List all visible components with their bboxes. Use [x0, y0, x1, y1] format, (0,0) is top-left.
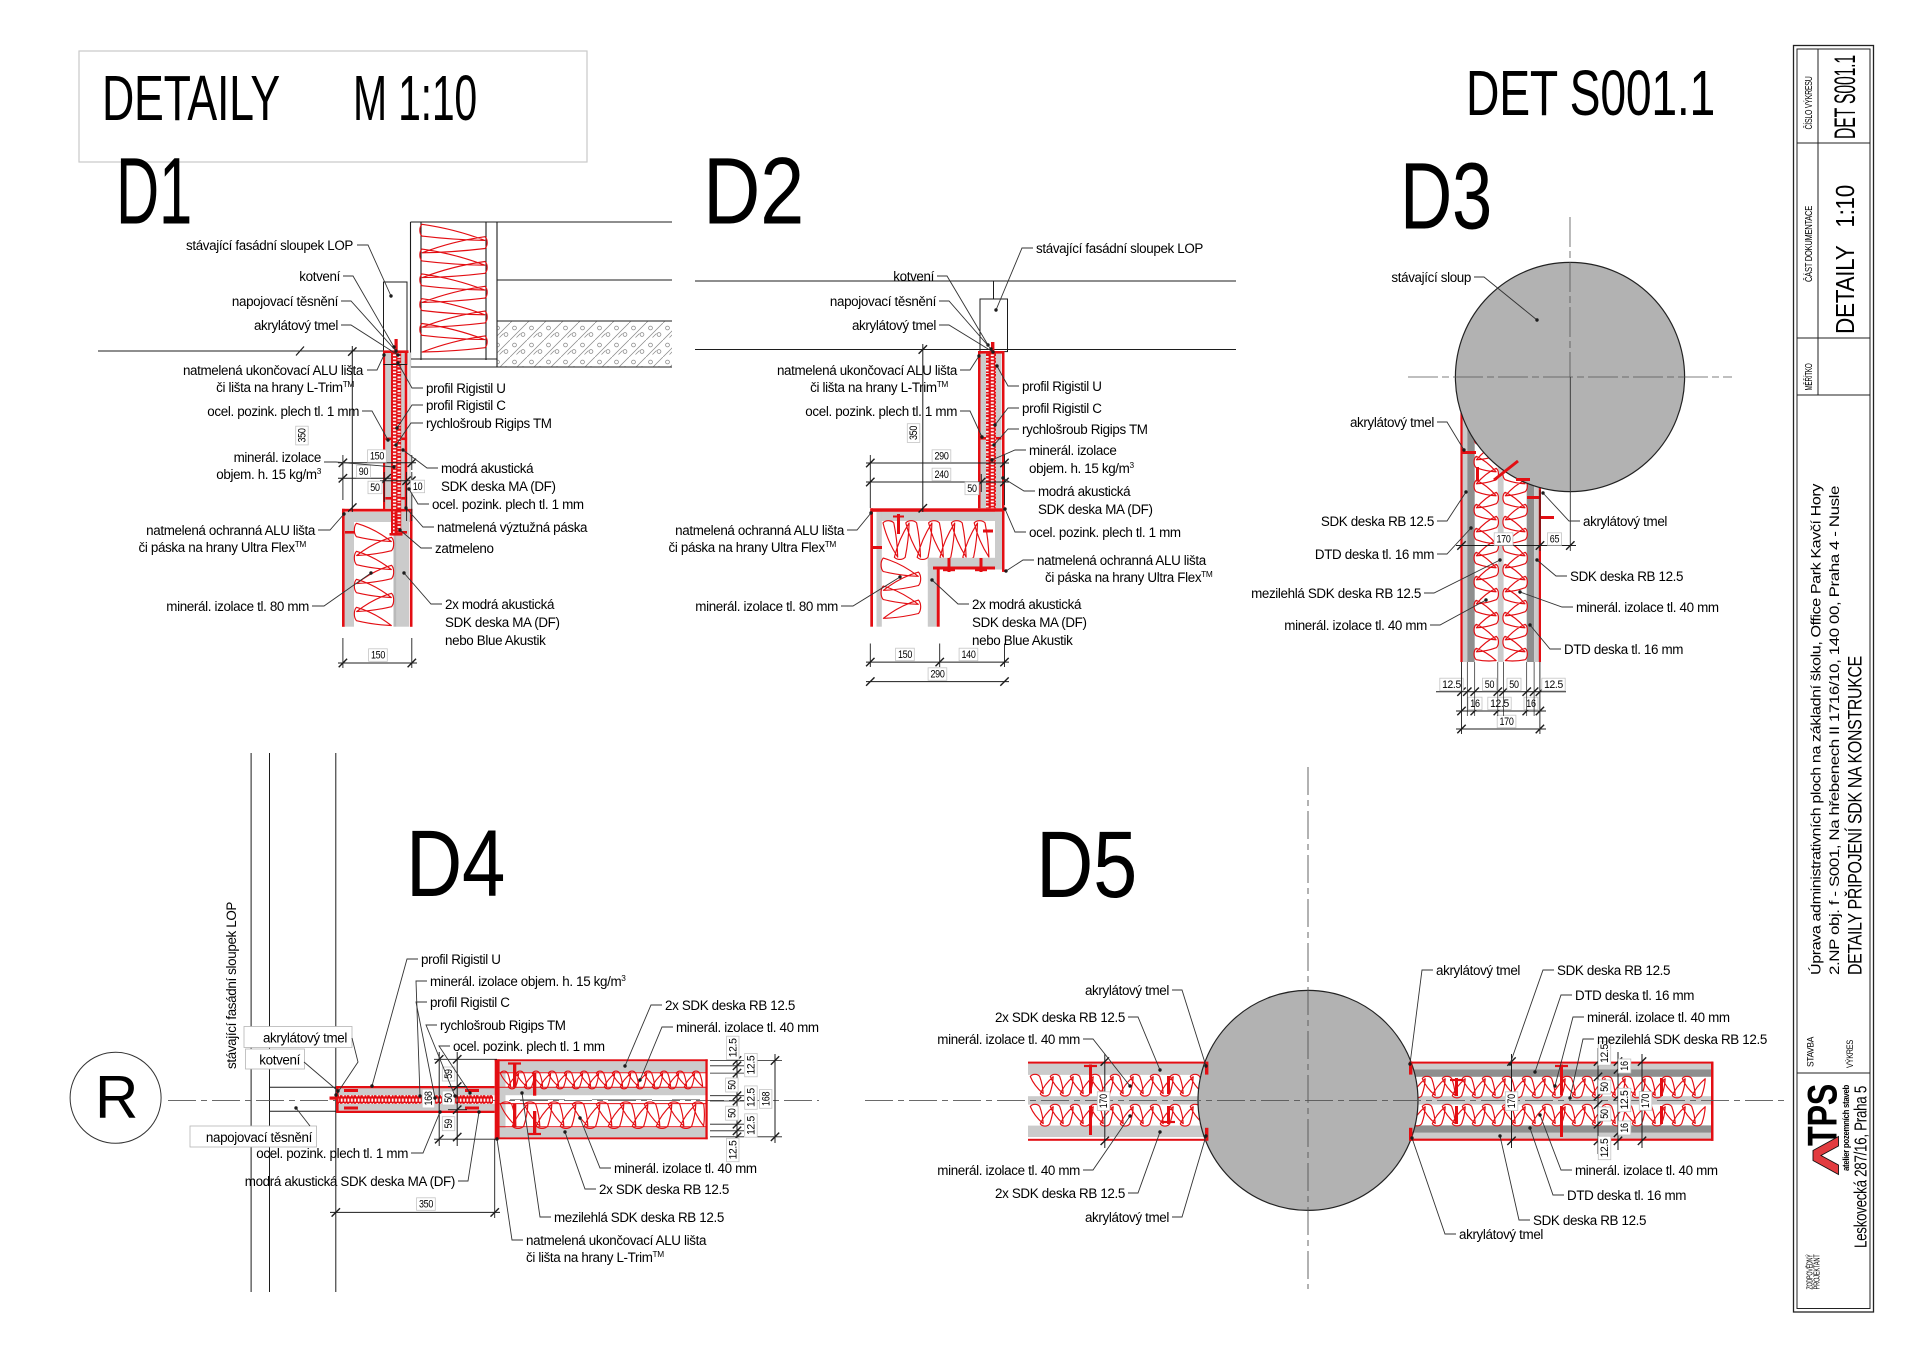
svg-text:či lišta na hrany L-TrimTM: či lišta na hrany L-TrimTM — [810, 379, 948, 395]
svg-text:minerál. izolace objem. h. 15: minerál. izolace objem. h. 15 kg/m3 — [430, 973, 626, 989]
svg-text:16: 16 — [1619, 1123, 1631, 1133]
svg-text:či páska na hrany Ultra FlexTM: či páska na hrany Ultra FlexTM — [139, 539, 307, 555]
svg-text:mezilehlá SDK deska RB 12.5: mezilehlá SDK deska RB 12.5 — [1597, 1032, 1767, 1047]
svg-text:59: 59 — [443, 1119, 455, 1129]
svg-text:profil Rigistil U: profil Rigistil U — [1022, 379, 1102, 394]
svg-text:12.5: 12.5 — [1442, 679, 1461, 691]
svg-text:minerál. izolace tl. 40 mm: minerál. izolace tl. 40 mm — [676, 1020, 819, 1035]
svg-text:2x SDK deska RB 12.5: 2x SDK deska RB 12.5 — [995, 1010, 1125, 1025]
svg-text:ČÁST DOKUMENTACE: ČÁST DOKUMENTACE — [1802, 205, 1815, 282]
svg-text:minerál. izolace tl. 40 mm: minerál. izolace tl. 40 mm — [937, 1163, 1080, 1178]
svg-text:ocel. pozink. plech tl. 1 mm: ocel. pozink. plech tl. 1 mm — [432, 497, 584, 512]
svg-text:140: 140 — [961, 649, 975, 661]
svg-text:DTD deska tl. 16 mm: DTD deska tl. 16 mm — [1567, 1188, 1686, 1203]
svg-text:ocel. pozink. plech tl. 1 mm: ocel. pozink. plech tl. 1 mm — [256, 1146, 408, 1161]
svg-text:minerál. izolace tl. 80 mm: minerál. izolace tl. 80 mm — [695, 599, 838, 614]
svg-text:modrá akustická: modrá akustická — [1038, 484, 1131, 499]
svg-text:objem. h. 15 kg/m3: objem. h. 15 kg/m3 — [1029, 460, 1134, 476]
svg-text:modrá akustická SDK deska MA (: modrá akustická SDK deska MA (DF) — [245, 1174, 455, 1189]
svg-text:170: 170 — [1499, 716, 1513, 728]
svg-text:rychlošroub Rigips TM: rychlošroub Rigips TM — [426, 416, 552, 431]
svg-text:12.5: 12.5 — [1599, 1138, 1611, 1157]
svg-text:150: 150 — [371, 650, 385, 662]
svg-text:50: 50 — [1599, 1082, 1611, 1092]
svg-text:170: 170 — [1506, 1094, 1518, 1108]
svg-text:akrylátový tmel: akrylátový tmel — [1583, 514, 1667, 529]
svg-text:350: 350 — [419, 1199, 433, 1211]
svg-text:DETAILY: DETAILY — [102, 62, 280, 134]
svg-text:65: 65 — [1550, 534, 1560, 546]
svg-text:290: 290 — [930, 669, 944, 681]
svg-text:50: 50 — [443, 1093, 455, 1103]
svg-text:ocel. pozink. plech tl. 1 mm: ocel. pozink. plech tl. 1 mm — [453, 1039, 605, 1054]
svg-text:mezilehlá SDK deska RB 12.5: mezilehlá SDK deska RB 12.5 — [554, 1210, 724, 1225]
svg-text:D1: D1 — [116, 139, 192, 245]
svg-text:profil Rigistil U: profil Rigistil U — [421, 952, 501, 967]
svg-text:napojovací těsnění: napojovací těsnění — [232, 294, 339, 309]
svg-text:natmelená ukončovací ALU lišta: natmelená ukončovací ALU lišta — [777, 363, 958, 378]
svg-text:minerál. izolace: minerál. izolace — [1029, 443, 1116, 458]
svg-text:minerál. izolace tl. 40 mm: minerál. izolace tl. 40 mm — [1284, 618, 1427, 633]
svg-text:2.NP obj. f - S001, Na hřebene: 2.NP obj. f - S001, Na hřebenech II 1716… — [1826, 485, 1842, 975]
svg-text:10: 10 — [413, 481, 423, 493]
svg-text:Leskovecká 287/16, Praha 5: Leskovecká 287/16, Praha 5 — [1851, 1086, 1871, 1248]
svg-text:natmelená ochranná ALU lišta: natmelená ochranná ALU lišta — [146, 523, 316, 538]
svg-text:minerál. izolace tl. 40 mm: minerál. izolace tl. 40 mm — [1575, 1163, 1718, 1178]
svg-text:SDK deska RB 12.5: SDK deska RB 12.5 — [1321, 514, 1434, 529]
svg-text:DETAILY 1:10: DETAILY 1:10 — [1830, 185, 1860, 334]
svg-text:SDK deska MA (DF): SDK deska MA (DF) — [1038, 502, 1153, 517]
svg-text:M 1:10: M 1:10 — [353, 62, 477, 134]
svg-text:170: 170 — [1496, 534, 1510, 546]
svg-text:12.5: 12.5 — [727, 1038, 739, 1057]
svg-text:ocel. pozink. plech tl. 1 mm: ocel. pozink. plech tl. 1 mm — [805, 404, 957, 419]
svg-text:či lišta na hrany L-TrimTM: či lišta na hrany L-TrimTM — [216, 379, 354, 395]
svg-text:ocel. pozink. plech tl. 1 mm: ocel. pozink. plech tl. 1 mm — [207, 404, 359, 419]
svg-text:170: 170 — [1098, 1094, 1110, 1108]
svg-text:modrá akustická: modrá akustická — [441, 461, 534, 476]
svg-text:natmelená ukončovací ALU lišta: natmelená ukončovací ALU lišta — [183, 363, 364, 378]
svg-text:VÝKRES: VÝKRES — [1845, 1040, 1855, 1068]
svg-text:SDK deska RB 12.5: SDK deska RB 12.5 — [1533, 1213, 1646, 1228]
svg-text:150: 150 — [370, 451, 384, 463]
svg-text:D2: D2 — [703, 139, 804, 245]
svg-text:akrylátový tmel: akrylátový tmel — [254, 318, 338, 333]
svg-text:350: 350 — [908, 426, 920, 440]
svg-text:12.5: 12.5 — [1490, 698, 1509, 710]
svg-text:50: 50 — [727, 1108, 739, 1118]
svg-text:12.5: 12.5 — [746, 1088, 758, 1107]
svg-text:kotvení: kotvení — [893, 269, 934, 284]
svg-text:DTD deska tl. 16 mm: DTD deska tl. 16 mm — [1564, 642, 1683, 657]
svg-text:12.5: 12.5 — [727, 1140, 739, 1159]
svg-text:či páska na hrany Ultra FlexTM: či páska na hrany Ultra FlexTM — [1045, 569, 1213, 585]
svg-text:240: 240 — [934, 469, 948, 481]
svg-text:50: 50 — [726, 1080, 738, 1090]
svg-text:50: 50 — [1485, 679, 1495, 691]
svg-text:2x SDK deska RB 12.5: 2x SDK deska RB 12.5 — [599, 1182, 729, 1197]
svg-text:MĚŘÍTKO: MĚŘÍTKO — [1802, 363, 1815, 390]
svg-text:2x modrá akustická: 2x modrá akustická — [445, 597, 555, 612]
svg-text:2x SDK deska RB 12.5: 2x SDK deska RB 12.5 — [995, 1186, 1125, 1201]
svg-text:50: 50 — [1599, 1109, 1611, 1119]
svg-text:rychlošroub Rigips TM: rychlošroub Rigips TM — [1022, 422, 1148, 437]
svg-text:akrylátový tmel: akrylátový tmel — [263, 1031, 347, 1046]
svg-text:minerál. izolace tl. 40 mm: minerál. izolace tl. 40 mm — [1587, 1010, 1730, 1025]
svg-text:DTD deska tl. 16 mm: DTD deska tl. 16 mm — [1575, 988, 1694, 1003]
svg-text:SDK deska RB 12.5: SDK deska RB 12.5 — [1570, 569, 1683, 584]
svg-text:natmelená výztužná páska: natmelená výztužná páska — [437, 520, 588, 535]
svg-text:nebo Blue Akustik: nebo Blue Akustik — [972, 633, 1073, 648]
svg-text:16: 16 — [1619, 1061, 1631, 1071]
svg-text:natmelená ukončovací ALU lišta: natmelená ukončovací ALU lišta — [526, 1233, 707, 1248]
svg-text:zatmeleno: zatmeleno — [435, 541, 494, 556]
svg-text:stávající fasádní sloupek LOP: stávající fasádní sloupek LOP — [224, 902, 239, 1069]
svg-text:natmelená ochranná ALU lišta: natmelená ochranná ALU lišta — [1037, 553, 1207, 568]
svg-text:50: 50 — [967, 483, 977, 495]
svg-text:168: 168 — [760, 1092, 772, 1106]
svg-text:ČÍSLO VÝKRESU: ČÍSLO VÝKRESU — [1802, 76, 1815, 129]
svg-text:12.5: 12.5 — [1544, 679, 1563, 691]
svg-text:290: 290 — [934, 451, 948, 463]
svg-text:170: 170 — [1640, 1094, 1652, 1108]
svg-text:či lišta na hrany L-TrimTM: či lišta na hrany L-TrimTM — [526, 1249, 664, 1265]
svg-text:minerál. izolace tl. 40 mm: minerál. izolace tl. 40 mm — [614, 1161, 757, 1176]
svg-text:50: 50 — [1509, 679, 1519, 691]
svg-text:SDK deska RB 12.5: SDK deska RB 12.5 — [1557, 963, 1670, 978]
svg-text:12.5: 12.5 — [746, 1055, 758, 1074]
svg-text:stávající fasádní sloupek LOP: stávající fasádní sloupek LOP — [186, 238, 353, 253]
svg-text:SDK deska MA (DF): SDK deska MA (DF) — [972, 615, 1087, 630]
svg-text:profil Rigistil C: profil Rigistil C — [426, 398, 506, 413]
svg-text:nebo Blue Akustik: nebo Blue Akustik — [445, 633, 546, 648]
svg-text:DET S001.1: DET S001.1 — [1829, 55, 1862, 139]
svg-text:50: 50 — [370, 482, 380, 494]
svg-text:Úprava administrativních ploch: Úprava administrativních ploch na základ… — [1808, 484, 1824, 975]
svg-text:objem. h. 15 kg/m3: objem. h. 15 kg/m3 — [216, 466, 321, 482]
svg-text:akrylátový tmel: akrylátový tmel — [852, 318, 936, 333]
svg-text:mezilehlá SDK deska RB 12.5: mezilehlá SDK deska RB 12.5 — [1251, 586, 1421, 601]
svg-text:SDK deska MA (DF): SDK deska MA (DF) — [445, 615, 560, 630]
svg-text:akrylátový tmel: akrylátový tmel — [1085, 983, 1169, 998]
svg-text:akrylátový tmel: akrylátový tmel — [1436, 963, 1520, 978]
svg-text:stávající fasádní sloupek LOP: stávající fasádní sloupek LOP — [1036, 241, 1203, 256]
svg-text:rychlošroub Rigips TM: rychlošroub Rigips TM — [440, 1018, 566, 1033]
svg-text:akrylátový tmel: akrylátový tmel — [1350, 415, 1434, 430]
svg-text:kotvení: kotvení — [259, 1053, 300, 1068]
svg-text:minerál. izolace tl. 40 mm: minerál. izolace tl. 40 mm — [937, 1032, 1080, 1047]
svg-text:90: 90 — [359, 466, 369, 478]
svg-text:12.5: 12.5 — [1619, 1090, 1631, 1109]
svg-text:minerál. izolace tl. 40 mm: minerál. izolace tl. 40 mm — [1576, 600, 1719, 615]
svg-text:DETAILY PŘIPOJENÍ SDK NA KONST: DETAILY PŘIPOJENÍ SDK NA KONSTRUKCE — [1845, 656, 1867, 975]
svg-text:2x modrá akustická: 2x modrá akustická — [972, 597, 1082, 612]
svg-text:minerál. izolace tl. 80 mm: minerál. izolace tl. 80 mm — [166, 599, 309, 614]
svg-text:ocel. pozink. plech tl. 1 mm: ocel. pozink. plech tl. 1 mm — [1029, 525, 1181, 540]
svg-text:D3: D3 — [1400, 144, 1492, 250]
svg-text:minerál. izolace: minerál. izolace — [234, 450, 321, 465]
svg-text:350: 350 — [297, 428, 309, 442]
svg-text:stávající sloup: stávající sloup — [1391, 270, 1471, 285]
svg-text:či páska na hrany Ultra FlexTM: či páska na hrany Ultra FlexTM — [669, 539, 837, 555]
svg-text:akrylátový tmel: akrylátový tmel — [1085, 1210, 1169, 1225]
svg-text:profil Rigistil C: profil Rigistil C — [1022, 401, 1102, 416]
svg-text:D4: D4 — [406, 811, 505, 917]
svg-text:150: 150 — [898, 649, 912, 661]
svg-text:akrylátový tmel: akrylátový tmel — [1459, 1227, 1543, 1242]
svg-text:SDK deska MA (DF): SDK deska MA (DF) — [441, 479, 556, 494]
svg-text:DTD deska tl. 16 mm: DTD deska tl. 16 mm — [1315, 547, 1434, 562]
svg-text:12.5: 12.5 — [746, 1116, 758, 1135]
svg-text:2x SDK deska RB 12.5: 2x SDK deska RB 12.5 — [665, 998, 795, 1013]
svg-text:DET S001.1: DET S001.1 — [1466, 57, 1715, 129]
svg-text:napojovací těsnění: napojovací těsnění — [830, 294, 937, 309]
svg-text:profil Rigistil C: profil Rigistil C — [430, 995, 510, 1010]
svg-text:profil Rigistil U: profil Rigistil U — [426, 381, 506, 396]
svg-text:PROJEKTANT: PROJEKTANT — [1813, 1254, 1822, 1289]
svg-text:napojovací těsnění: napojovací těsnění — [206, 1130, 313, 1145]
svg-text:R: R — [95, 1064, 138, 1131]
svg-text:16: 16 — [1470, 698, 1480, 710]
svg-text:kotvení: kotvení — [299, 269, 340, 284]
svg-text:D5: D5 — [1036, 812, 1137, 918]
svg-text:natmelená ochranná ALU lišta: natmelená ochranná ALU lišta — [675, 523, 845, 538]
svg-text:STAVBA: STAVBA — [1806, 1037, 1816, 1067]
